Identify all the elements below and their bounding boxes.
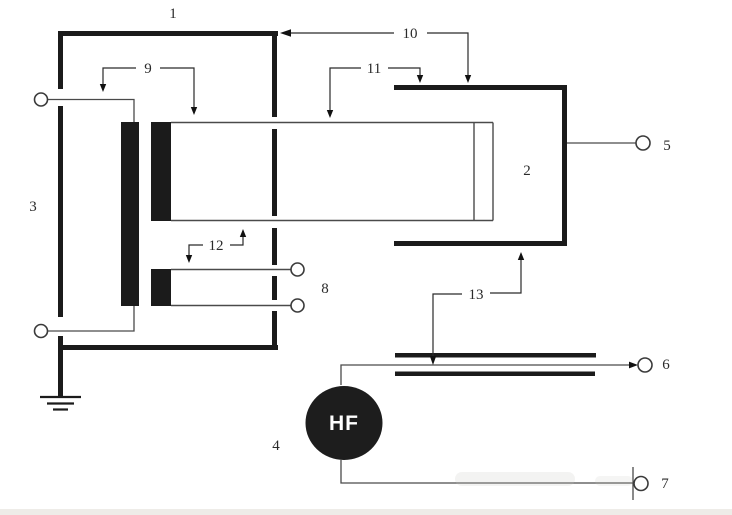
bottom-edge-shade	[0, 509, 732, 515]
leader-13-down-arrowhead	[430, 356, 436, 365]
enclosure-top-wall	[58, 31, 278, 36]
watermark-smudge	[455, 472, 575, 486]
watermark-smudge-2	[595, 476, 633, 486]
schematic-diagram: HF 1 2 3 4	[0, 0, 732, 515]
leader-10-left-arrowhead	[280, 29, 291, 37]
leader-9-right-arrowhead	[191, 107, 197, 115]
label-4: 4	[272, 438, 280, 454]
lower-lead-terminal-circle	[35, 325, 48, 338]
terminal-5-circle	[636, 136, 650, 150]
upper-lead-terminal-circle	[35, 93, 48, 106]
label-5: 5	[663, 138, 671, 154]
enclosure-right-wall-seg3	[272, 228, 277, 265]
main-tube	[171, 123, 493, 221]
ground-icon	[40, 397, 81, 410]
filament-leads	[35, 93, 135, 338]
enclosure-left-wall-middle	[58, 106, 63, 317]
upper-plate	[395, 353, 596, 358]
electrodes	[121, 122, 171, 306]
enclosure-right-wall-seg2	[272, 129, 277, 216]
enclosure-left-wall-upper	[58, 31, 63, 89]
shield-bottom-wall	[394, 241, 567, 246]
label-7: 7	[661, 476, 669, 492]
label-6: 6	[662, 357, 670, 373]
leader-12-down-arrowhead	[186, 255, 192, 263]
deflection-plates	[341, 353, 652, 385]
shield-top-wall	[394, 85, 567, 90]
label-9: 9	[144, 61, 152, 77]
leader-13	[430, 252, 524, 365]
label-1: 1	[169, 6, 177, 22]
terminal-5	[567, 136, 650, 150]
leader-10-down-arrowhead	[465, 75, 471, 83]
label-10: 10	[403, 26, 418, 42]
label-13: 13	[469, 287, 484, 303]
leader-9-left-arrowhead	[100, 84, 106, 92]
enclosure-right-wall-seg5	[272, 311, 277, 350]
hf-generator-label: HF	[329, 412, 359, 435]
enclosure-right-wall-seg4	[272, 276, 277, 300]
beam-arrowhead	[629, 362, 638, 369]
label-8: 8	[321, 281, 329, 297]
terminal-8-upper-circle	[291, 263, 304, 276]
page-artifacts	[0, 472, 732, 515]
hf-generator: HF	[306, 386, 383, 460]
outer-electrode-bar	[121, 122, 139, 306]
label-11: 11	[367, 61, 381, 77]
lower-plate	[395, 372, 595, 377]
leader-11-right-arrowhead	[417, 75, 423, 83]
label-3: 3	[29, 199, 37, 215]
leader-12-up-arrowhead	[240, 229, 246, 237]
right-shield-bracket	[394, 85, 567, 246]
terminal-7-circle	[634, 477, 648, 491]
enclosure-right-wall-seg1	[272, 31, 277, 117]
label-2: 2	[523, 163, 531, 179]
leader-13-up-arrowhead	[518, 252, 524, 260]
small-tube	[171, 263, 304, 312]
terminal-8-lower-circle	[291, 299, 304, 312]
terminal-6-circle	[638, 358, 652, 372]
enclosure-bottom-wall	[58, 345, 278, 350]
label-12: 12	[209, 238, 224, 254]
main-tube-electrode-bar	[151, 122, 171, 221]
shield-right-wall	[562, 85, 567, 246]
diagram-canvas: HF 1 2 3 4	[0, 0, 732, 515]
small-tube-electrode-bar	[151, 269, 171, 306]
leader-11-left-arrowhead	[327, 110, 333, 118]
